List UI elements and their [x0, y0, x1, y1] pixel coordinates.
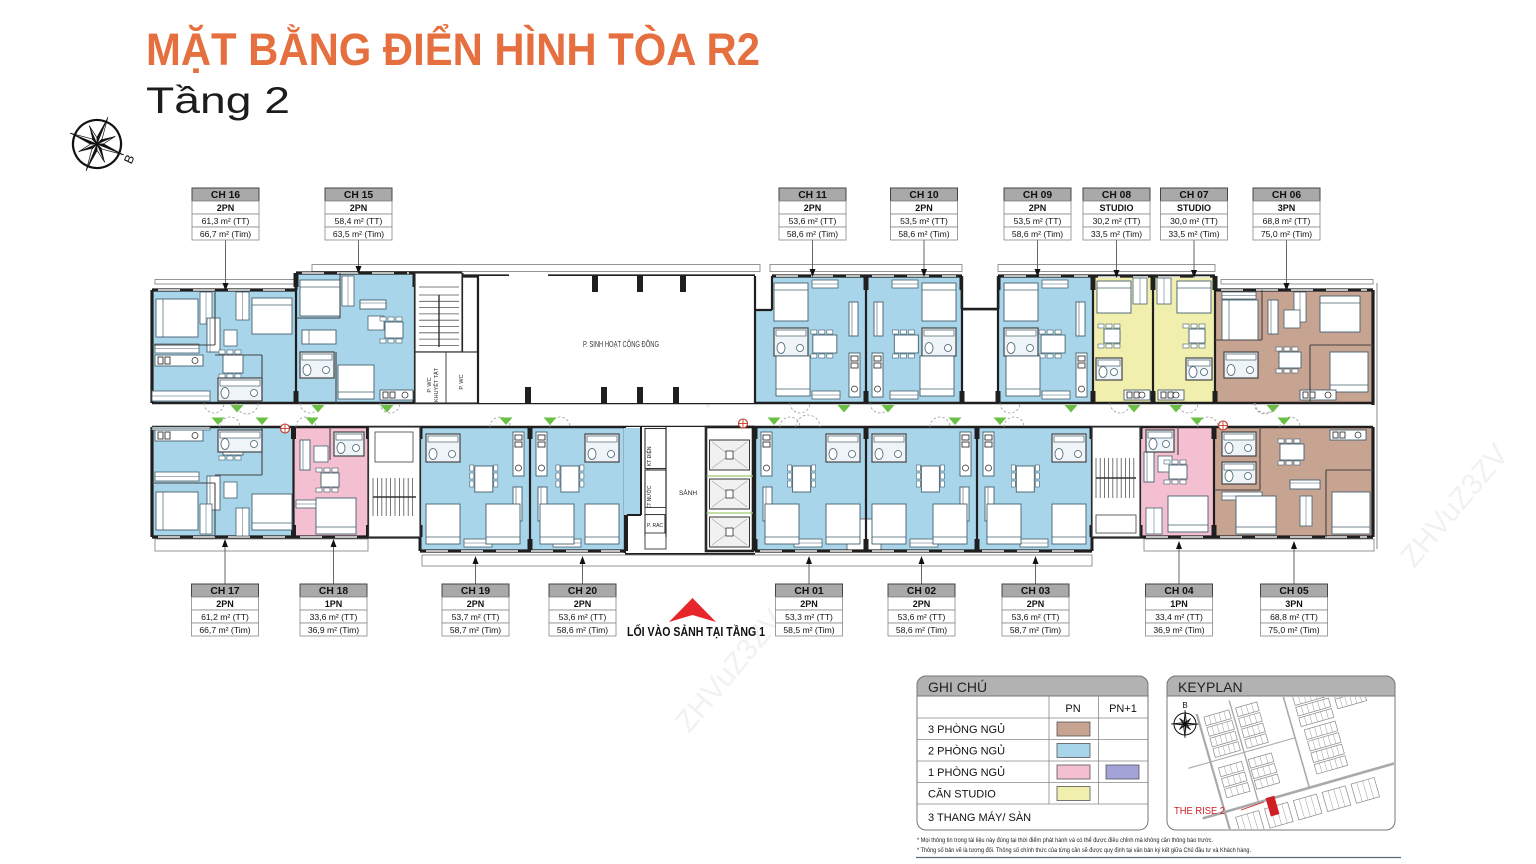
svg-text:CH 02: CH 02	[907, 586, 936, 597]
svg-text:1PN: 1PN	[325, 599, 343, 609]
svg-text:P. SINH HOẠT CỘNG ĐỒNG: P. SINH HOẠT CỘNG ĐỒNG	[583, 338, 659, 349]
svg-text:CH 11: CH 11	[798, 190, 827, 201]
svg-text:1 PHÒNG NGỦ: 1 PHÒNG NGỦ	[928, 766, 1005, 779]
svg-text:CH 06: CH 06	[1272, 190, 1301, 201]
svg-text:2PN: 2PN	[467, 599, 485, 609]
svg-text:P. WC: P. WC	[427, 377, 433, 392]
svg-text:CH 15: CH 15	[344, 190, 373, 201]
svg-text:ZHVuZ3ZV: ZHVuZ3ZV	[669, 603, 790, 738]
svg-text:CH 16: CH 16	[211, 190, 240, 201]
svg-text:30,0 m² (TT): 30,0 m² (TT)	[1170, 216, 1218, 226]
svg-text:53,7 m² (TT): 53,7 m² (TT)	[452, 612, 500, 622]
svg-text:MẶT BẰNG ĐIỂN HÌNH TÒA R2: MẶT BẰNG ĐIỂN HÌNH TÒA R2	[146, 24, 760, 75]
svg-text:58,6 m² (Tim): 58,6 m² (Tim)	[898, 229, 949, 239]
svg-text:53,6 m² (TT): 53,6 m² (TT)	[1012, 612, 1060, 622]
svg-text:* Mọi thông tin trong tài liệu: * Mọi thông tin trong tài liệu này đúng …	[917, 835, 1213, 844]
svg-text:53,5 m² (TT): 53,5 m² (TT)	[1014, 216, 1062, 226]
svg-text:53,3 m² (TT): 53,3 m² (TT)	[785, 612, 833, 622]
svg-text:* Thông số bản vẽ là tương đối: * Thông số bản vẽ là tương đối. Thông số…	[917, 845, 1251, 854]
svg-text:36,9 m² (Tim): 36,9 m² (Tim)	[1153, 625, 1204, 635]
svg-text:2PN: 2PN	[216, 599, 234, 609]
svg-text:33,6 m² (TT): 33,6 m² (TT)	[310, 612, 358, 622]
svg-text:B: B	[121, 153, 137, 166]
svg-text:58,7 m² (Tim): 58,7 m² (Tim)	[1010, 625, 1061, 635]
svg-text:KHUYẾT TẬT: KHUYẾT TẬT	[433, 367, 440, 402]
svg-text:STUDIO: STUDIO	[1099, 203, 1133, 213]
svg-text:P. KT ĐIỆN: P. KT ĐIỆN	[645, 446, 653, 471]
svg-text:CH 09: CH 09	[1023, 190, 1052, 201]
svg-text:2PN: 2PN	[913, 599, 931, 609]
svg-text:CH 05: CH 05	[1279, 586, 1308, 597]
svg-text:3PN: 3PN	[1285, 599, 1303, 609]
svg-text:68,8 m² (TT): 68,8 m² (TT)	[1270, 612, 1318, 622]
svg-text:33,4 m² (TT): 33,4 m² (TT)	[1155, 612, 1203, 622]
svg-text:2PN: 2PN	[1027, 599, 1045, 609]
svg-text:2PN: 2PN	[217, 203, 235, 213]
svg-text:GHI CHÚ: GHI CHÚ	[928, 679, 987, 695]
svg-text:58,7 m² (Tim): 58,7 m² (Tim)	[450, 625, 501, 635]
svg-text:3 THANG MÁY/ SÀN: 3 THANG MÁY/ SÀN	[928, 811, 1031, 824]
svg-text:66,7 m² (Tim): 66,7 m² (Tim)	[200, 229, 251, 239]
svg-text:STUDIO: STUDIO	[1177, 203, 1211, 213]
svg-text:P. WC: P. WC	[459, 374, 465, 389]
svg-text:2PN: 2PN	[1029, 203, 1047, 213]
svg-text:CH 18: CH 18	[319, 586, 348, 597]
svg-text:THE RISE 2: THE RISE 2	[1174, 805, 1225, 817]
svg-text:58,6 m² (Tim): 58,6 m² (Tim)	[787, 229, 838, 239]
svg-text:66,7 m² (Tim): 66,7 m² (Tim)	[199, 625, 250, 635]
svg-text:53,5 m² (TT): 53,5 m² (TT)	[900, 216, 948, 226]
svg-text:2PN: 2PN	[350, 203, 368, 213]
svg-text:P. RÁC: P. RÁC	[647, 522, 663, 529]
svg-text:63,5 m² (Tim): 63,5 m² (Tim)	[333, 229, 384, 239]
svg-text:58,6 m² (Tim): 58,6 m² (Tim)	[896, 625, 947, 635]
svg-text:CH 01: CH 01	[794, 586, 823, 597]
svg-text:B: B	[1182, 701, 1187, 710]
svg-text:58,6 m² (Tim): 58,6 m² (Tim)	[557, 625, 608, 635]
svg-text:PN: PN	[1065, 703, 1080, 715]
svg-text:30,2 m² (TT): 30,2 m² (TT)	[1093, 216, 1141, 226]
svg-text:33,5 m² (Tim): 33,5 m² (Tim)	[1091, 229, 1142, 239]
svg-text:CH 04: CH 04	[1164, 586, 1193, 597]
svg-text:CH 20: CH 20	[568, 586, 597, 597]
svg-text:58,4 m² (TT): 58,4 m² (TT)	[335, 216, 383, 226]
svg-text:3 PHÒNG NGỦ: 3 PHÒNG NGỦ	[928, 723, 1005, 736]
svg-text:2PN: 2PN	[804, 203, 822, 213]
svg-text:53,6 m² (TT): 53,6 m² (TT)	[559, 612, 607, 622]
svg-text:2PN: 2PN	[574, 599, 592, 609]
svg-text:68,8 m² (TT): 68,8 m² (TT)	[1263, 216, 1311, 226]
svg-text:1PN: 1PN	[1170, 599, 1188, 609]
svg-text:53,6 m² (TT): 53,6 m² (TT)	[898, 612, 946, 622]
svg-text:LỐI VÀO SẢNH TẠI TẦNG 1: LỐI VÀO SẢNH TẠI TẦNG 1	[627, 624, 765, 639]
svg-text:CH 07: CH 07	[1179, 190, 1208, 201]
svg-text:2 PHÒNG NGỦ: 2 PHÒNG NGỦ	[928, 745, 1005, 758]
svg-text:2PN: 2PN	[915, 203, 933, 213]
svg-text:58,6 m² (Tim): 58,6 m² (Tim)	[1012, 229, 1063, 239]
svg-text:KEYPLAN: KEYPLAN	[1178, 679, 1243, 695]
svg-text:58,5 m² (Tim): 58,5 m² (Tim)	[783, 625, 834, 635]
svg-text:33,5 m² (Tim): 33,5 m² (Tim)	[1168, 229, 1219, 239]
svg-text:CH 03: CH 03	[1021, 586, 1050, 597]
svg-text:75,0 m² (Tim): 75,0 m² (Tim)	[1268, 625, 1319, 635]
svg-text:ZHVuZ3ZV: ZHVuZ3ZV	[1394, 438, 1515, 573]
svg-text:CĂN STUDIO: CĂN STUDIO	[928, 788, 996, 801]
svg-text:36,9 m² (Tim): 36,9 m² (Tim)	[308, 625, 359, 635]
svg-text:75,0 m² (Tim): 75,0 m² (Tim)	[1261, 229, 1312, 239]
svg-text:Tầng 2: Tầng 2	[146, 80, 290, 121]
svg-text:CH 08: CH 08	[1102, 190, 1131, 201]
svg-text:3PN: 3PN	[1278, 203, 1296, 213]
svg-text:CH 10: CH 10	[909, 190, 938, 201]
svg-text:CH 19: CH 19	[461, 586, 490, 597]
svg-text:2PN: 2PN	[800, 599, 818, 609]
svg-text:61,3 m² (TT): 61,3 m² (TT)	[202, 216, 250, 226]
svg-text:53,6 m² (TT): 53,6 m² (TT)	[789, 216, 837, 226]
svg-text:PN+1: PN+1	[1109, 703, 1137, 715]
svg-text:CH 17: CH 17	[210, 586, 239, 597]
svg-text:SẢNH: SẢNH	[679, 488, 697, 497]
svg-text:61,2 m² (TT): 61,2 m² (TT)	[201, 612, 249, 622]
